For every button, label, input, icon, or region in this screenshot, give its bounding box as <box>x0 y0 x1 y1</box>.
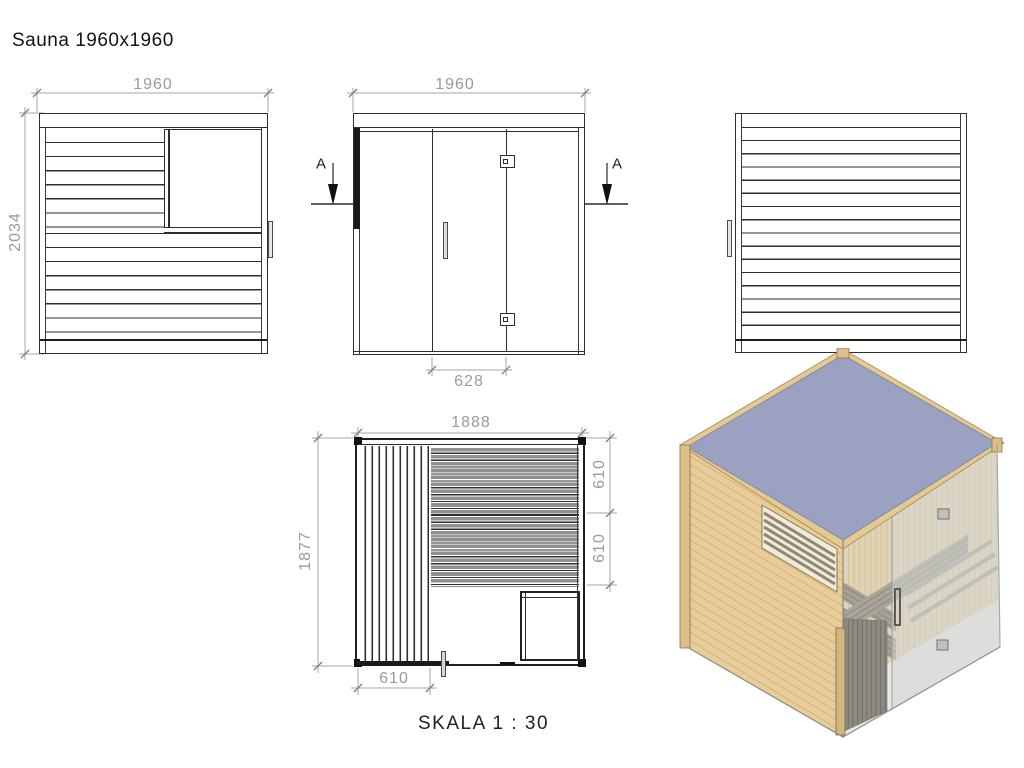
right-corner-post <box>578 128 584 354</box>
dim-front-width: 1960 <box>435 76 475 94</box>
dim-plan-depth: 1877 <box>297 531 315 571</box>
stool-inner-left <box>525 593 526 659</box>
window-frame-strip <box>168 130 170 227</box>
bench-slats <box>431 447 579 587</box>
dim-plan-width: 1888 <box>451 414 491 432</box>
stool-inner-top <box>522 597 578 598</box>
hinge-pin <box>503 159 508 165</box>
iso-3d-view <box>650 348 1024 760</box>
front-wall-thick <box>357 661 449 665</box>
door-hinge-top <box>500 155 515 168</box>
left-frame-strip <box>354 229 360 354</box>
hinge-pin <box>503 317 508 323</box>
drawing-sheet: Sauna 1960x1960 SKALA 1 : 30 <box>0 0 1024 768</box>
front-elevation-view <box>353 113 585 355</box>
right-wall-inner-line <box>577 444 578 660</box>
top-header-board <box>40 114 267 128</box>
dim-door-width: 628 <box>454 373 484 391</box>
right-corner-post <box>960 114 966 352</box>
dim-bench-depth-1: 610 <box>591 459 609 489</box>
right-elevation-view <box>735 113 967 353</box>
dim-backrest-width: 610 <box>379 670 409 688</box>
door-left-edge <box>432 129 433 352</box>
wall-slats-lower <box>46 233 261 340</box>
front-corner-post <box>836 628 845 735</box>
bottom-rail <box>354 351 584 352</box>
glass-hinge-top <box>938 509 949 519</box>
bench-divider-line <box>431 514 579 516</box>
door-hinge-plan <box>500 662 515 666</box>
glass-top-rail <box>360 131 578 132</box>
bottom-base-board <box>40 339 267 353</box>
door-hinge-bottom <box>500 313 515 326</box>
left-elevation-view <box>39 113 268 354</box>
dim-bench-depth-2: 610 <box>591 533 609 563</box>
wall-slats-upper <box>46 129 164 233</box>
section-label-right: A <box>612 156 622 173</box>
section-cut-strip <box>354 128 360 229</box>
backrest-slats-left <box>360 446 429 661</box>
section-label-left: A <box>316 156 326 173</box>
glass-hinge-bottom <box>937 640 948 650</box>
wall-slats <box>742 127 960 338</box>
dim-left-height: 2034 <box>7 212 25 252</box>
top-corner-cap <box>837 348 849 358</box>
dim-left-width: 1960 <box>133 76 173 94</box>
top-header-board <box>354 114 584 128</box>
plan-view <box>355 438 585 666</box>
door-handle-side <box>268 221 273 258</box>
left-corner-post <box>680 445 690 648</box>
window <box>164 129 262 228</box>
door-handle-plan <box>441 651 446 677</box>
stool-bench <box>520 591 580 661</box>
door-handle-side <box>727 220 732 257</box>
door-handle <box>443 222 448 259</box>
back-wall-line <box>357 444 583 445</box>
